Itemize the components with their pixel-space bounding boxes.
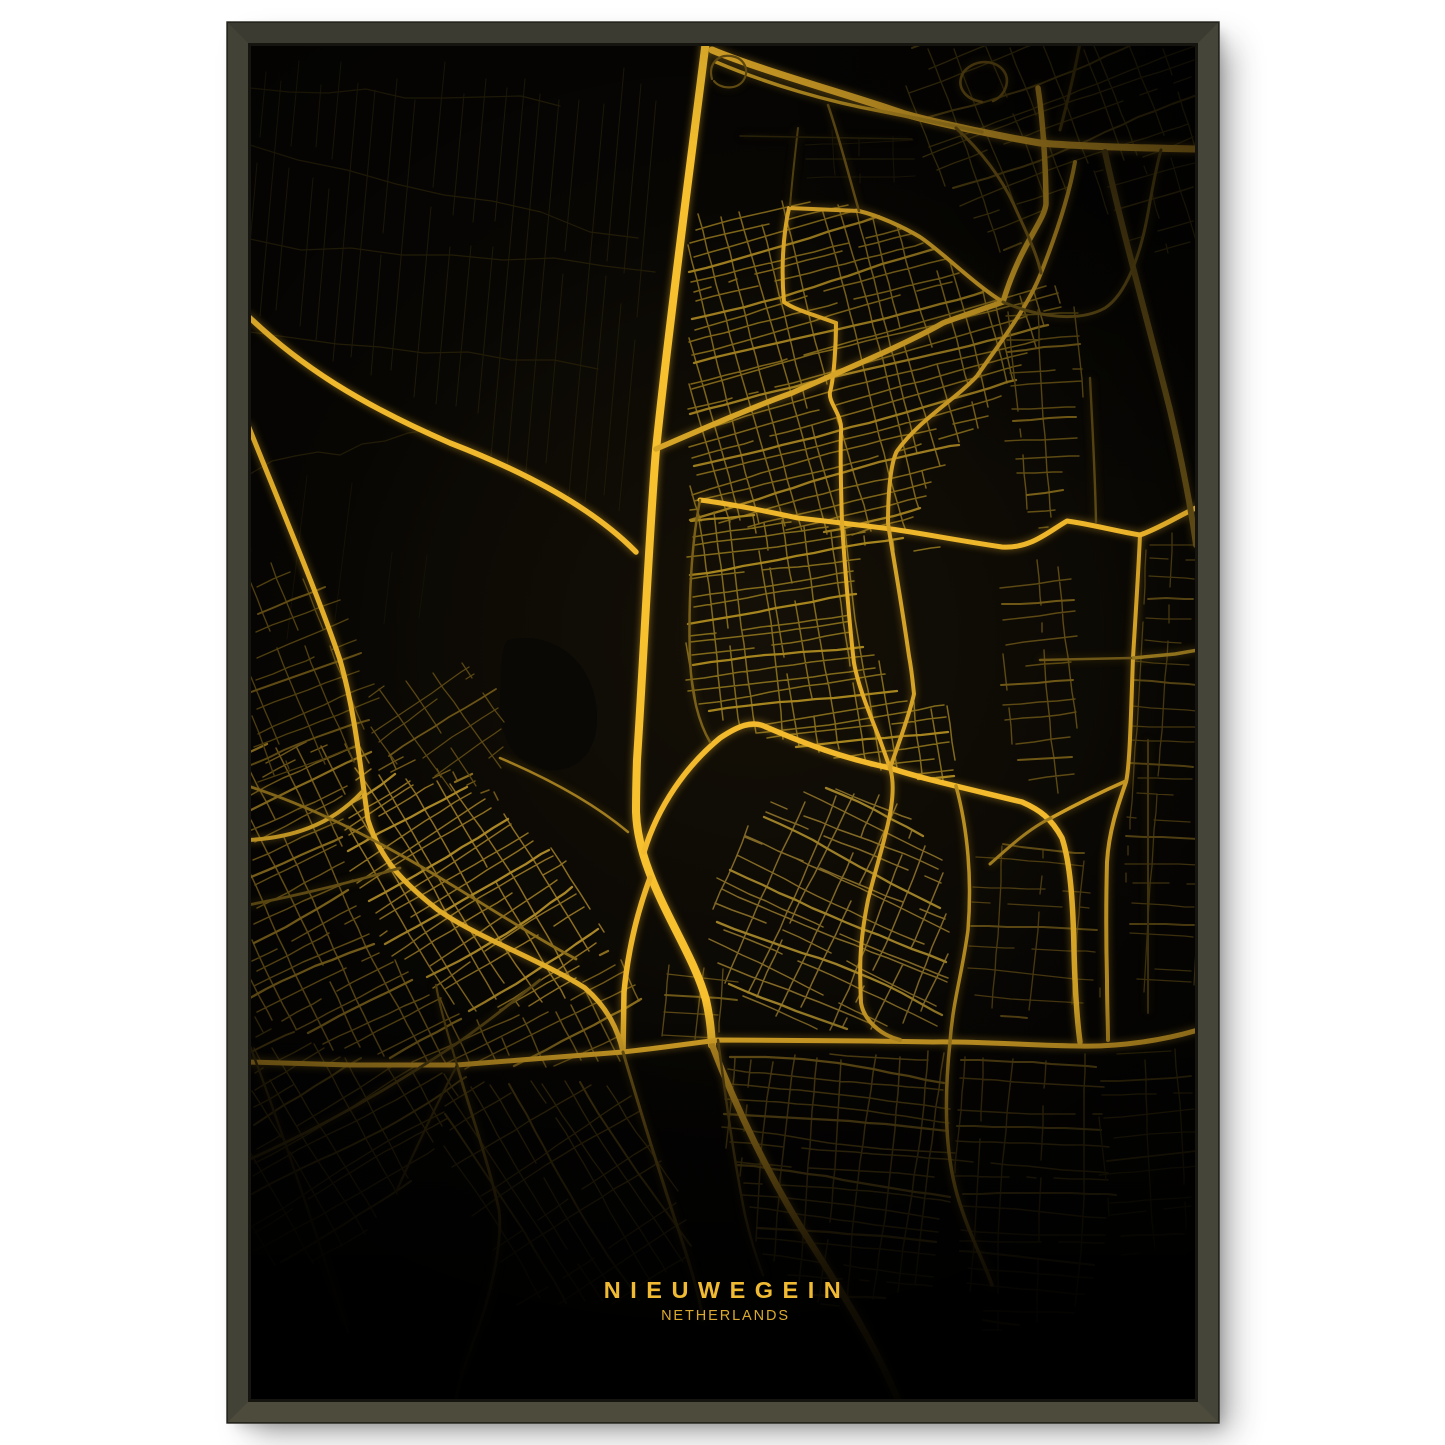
svg-text:NIEUWEGEIN: NIEUWEGEIN	[604, 1277, 850, 1303]
svg-text:NETHERLANDS: NETHERLANDS	[661, 1308, 790, 1324]
